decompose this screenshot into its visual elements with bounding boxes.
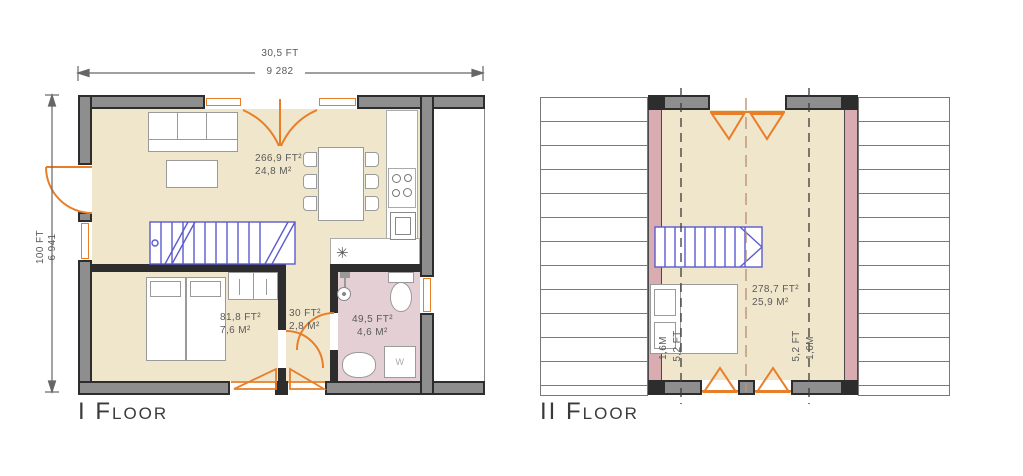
bathroom-sink (342, 352, 376, 378)
window (78, 222, 92, 260)
dim-arrow (78, 70, 89, 77)
dim-height-mm: 6 941 (47, 219, 59, 275)
bathroom-area-m: 4,6 M² (357, 327, 388, 339)
door-opening (242, 95, 318, 109)
wall-block (648, 380, 663, 395)
window-opening (702, 380, 738, 395)
pillow (654, 289, 676, 316)
floor1-annex (432, 97, 485, 395)
pillow (190, 281, 221, 297)
chair (365, 196, 379, 211)
window-opening (755, 380, 791, 395)
toilet-bowl (390, 282, 412, 312)
sofa-seat-edge (149, 139, 237, 140)
window (230, 381, 275, 395)
floor2-dim-right-m: 1,6M (805, 325, 817, 371)
sofa (148, 112, 238, 152)
window (318, 95, 357, 109)
window-frame (81, 223, 89, 259)
floor2-dim-right-ft: 5,2 FT (791, 323, 803, 369)
floor2-room-area-m: 25,9 M² (752, 297, 789, 309)
floor1-label: I Floor (78, 398, 168, 426)
wall-pier (738, 380, 755, 395)
floor2-dim-left-ft: 5,2 FT (672, 323, 684, 369)
chair (303, 196, 317, 211)
window-frame (206, 98, 241, 106)
window-opening (710, 95, 785, 110)
bedroom-area-ft: 81,8 FT² (220, 312, 261, 324)
exterior-wall (420, 313, 434, 395)
floorplan-canvas: ✳ W (0, 0, 1023, 476)
window-frame (423, 278, 431, 312)
interior-wall (330, 264, 422, 272)
wall-block (843, 380, 858, 395)
interior-wall (278, 368, 286, 381)
dim-height-ft: 100 FT (35, 219, 47, 275)
chair (303, 152, 317, 167)
dim-arrow (49, 381, 56, 392)
window (420, 277, 434, 313)
burner (403, 188, 412, 197)
exterior-wall (785, 95, 843, 110)
living-room-area-m: 24,8 M² (255, 166, 292, 178)
floor2-roof-left (540, 97, 648, 396)
kitchen-sink (390, 212, 416, 240)
hall-area-m: 2,8 M² (289, 321, 320, 333)
chair (303, 174, 317, 189)
exterior-wall (78, 95, 205, 109)
chair (365, 174, 379, 189)
floor2-room-area-ft: 278,7 FT² (752, 284, 799, 296)
sink-basin (395, 217, 411, 235)
floor2-label: II Floor (540, 398, 639, 426)
exterior-wall (78, 95, 92, 165)
exterior-wall (663, 380, 702, 395)
bed (146, 277, 186, 361)
burner (404, 174, 412, 182)
window-frame (319, 98, 356, 106)
exterior-wall (78, 260, 92, 395)
sofa-cushion-divider (206, 113, 207, 139)
window (288, 381, 325, 395)
floor2-knee-wall-right (844, 108, 858, 382)
exterior-wall (663, 95, 710, 110)
washer-label: W (396, 356, 405, 368)
washing-machine: W (384, 346, 416, 378)
hall-area-ft: 30 FT² (289, 308, 321, 320)
interior-wall (278, 272, 286, 330)
coffee-table (166, 160, 218, 188)
wall-block (648, 95, 663, 110)
window (205, 95, 242, 109)
sofa-cushion-divider (177, 113, 178, 139)
wardrobe-divider (253, 273, 254, 299)
dim-arrow (49, 95, 56, 106)
pillow (150, 281, 181, 297)
dining-table (318, 147, 364, 221)
shower-head (337, 287, 351, 301)
dim-width-ft: 30,5 FT (230, 48, 330, 60)
floor2-roof-right (858, 97, 950, 396)
wardrobe-divider (266, 279, 267, 295)
exterior-wall (78, 381, 230, 395)
bedroom-area-m: 7,6 M² (220, 325, 251, 337)
wardrobe-divider (239, 279, 240, 295)
chair (365, 152, 379, 167)
exterior-wall (420, 95, 434, 277)
wall-pier (275, 381, 288, 395)
wardrobe (228, 272, 278, 300)
exterior-wall (791, 380, 843, 395)
floor2-dim-left-m: 1,6M (658, 325, 670, 371)
bathroom-area-ft: 49,5 FT² (352, 314, 393, 326)
dim-width-mm: 9 282 (255, 66, 305, 78)
exterior-wall (78, 212, 92, 222)
dim-arrow (472, 70, 483, 77)
interior-wall (330, 350, 338, 381)
exterior-wall (325, 381, 485, 395)
interior-wall (92, 264, 286, 272)
door-opening (78, 165, 92, 212)
stove (388, 168, 416, 208)
burner (392, 174, 401, 183)
snowflake-icon: ✳ (336, 244, 349, 262)
wall-block (843, 95, 858, 110)
burner (392, 189, 400, 197)
living-room-area-ft: 266,9 FT² (255, 153, 302, 165)
